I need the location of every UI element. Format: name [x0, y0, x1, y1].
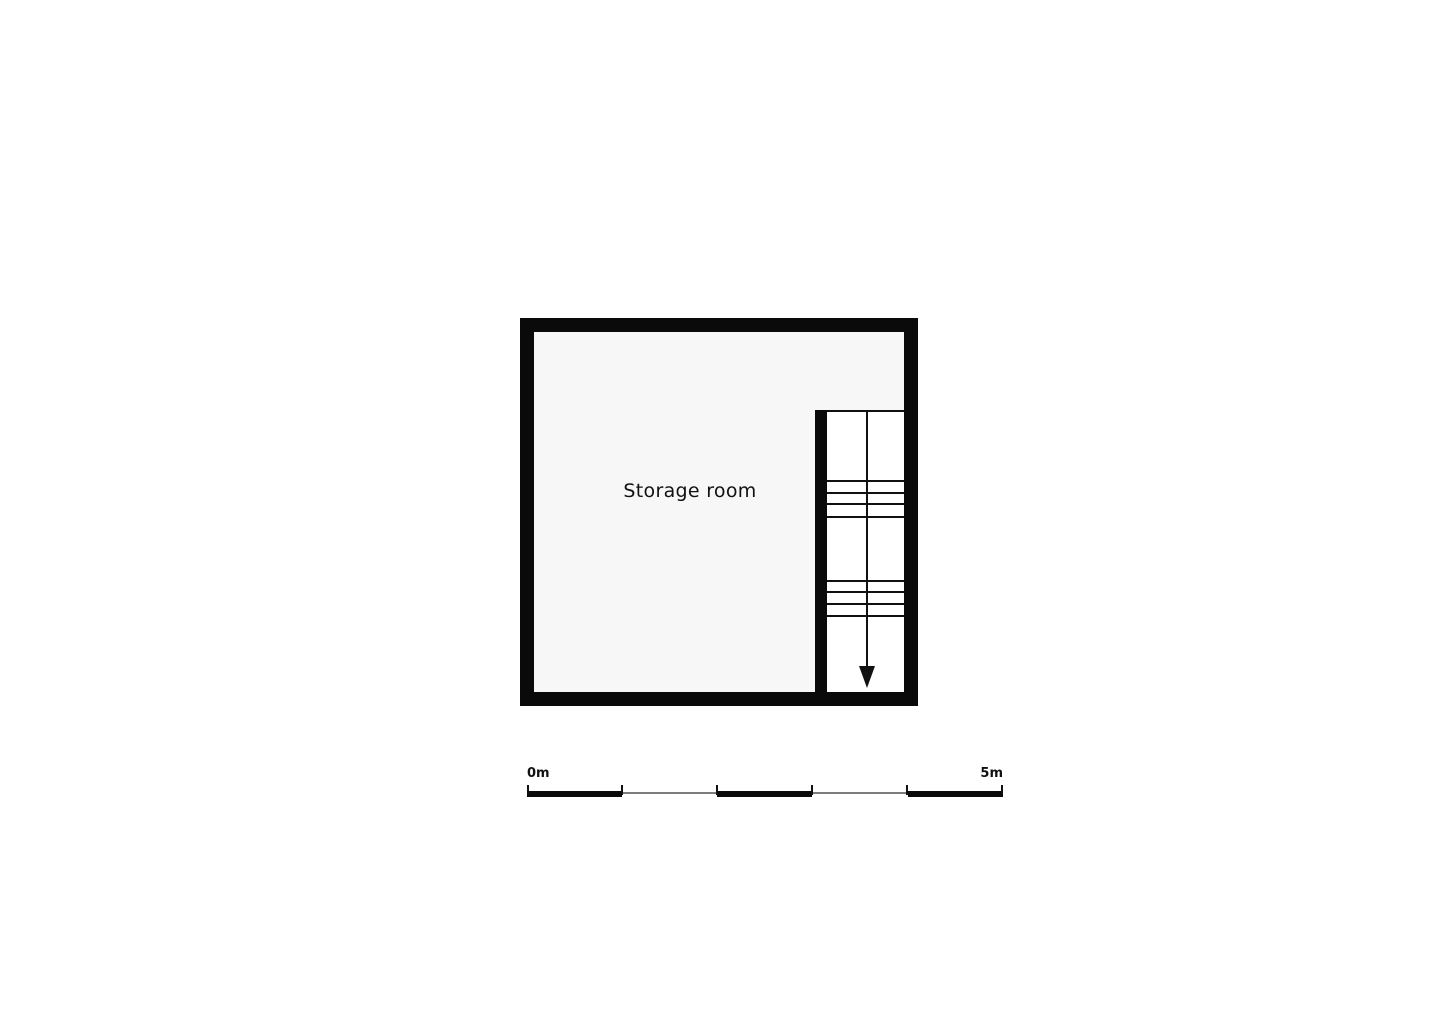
- scale-segment-filled: [908, 791, 1003, 797]
- scale-tick: [527, 785, 529, 795]
- stair-partition-wall: [815, 410, 827, 692]
- room-label: Storage room: [623, 480, 756, 502]
- scale-segment-filled: [717, 791, 812, 797]
- scale-end-label: 5m: [980, 766, 1003, 781]
- stair-direction-line: [866, 410, 868, 668]
- storage-room-area: Storage room: [534, 332, 904, 692]
- staircase: [827, 410, 904, 692]
- scale-bar-labels: 0m 5m: [527, 766, 1003, 782]
- floorplan-canvas: Storage room 0m 5m: [0, 0, 1440, 1024]
- scale-start-label: 0m: [527, 766, 550, 781]
- scale-tick: [811, 785, 813, 795]
- scale-tick: [621, 785, 623, 795]
- scale-segment-filled: [527, 791, 622, 797]
- stair-down-arrow-icon: [859, 666, 875, 688]
- floorplan-walls: Storage room: [520, 318, 918, 706]
- scale-tick: [906, 785, 908, 795]
- scale-tick: [716, 785, 718, 795]
- scale-tick: [1001, 785, 1003, 795]
- scale-bar: 0m 5m: [527, 766, 1003, 799]
- scale-bar-ruler: [527, 785, 1003, 799]
